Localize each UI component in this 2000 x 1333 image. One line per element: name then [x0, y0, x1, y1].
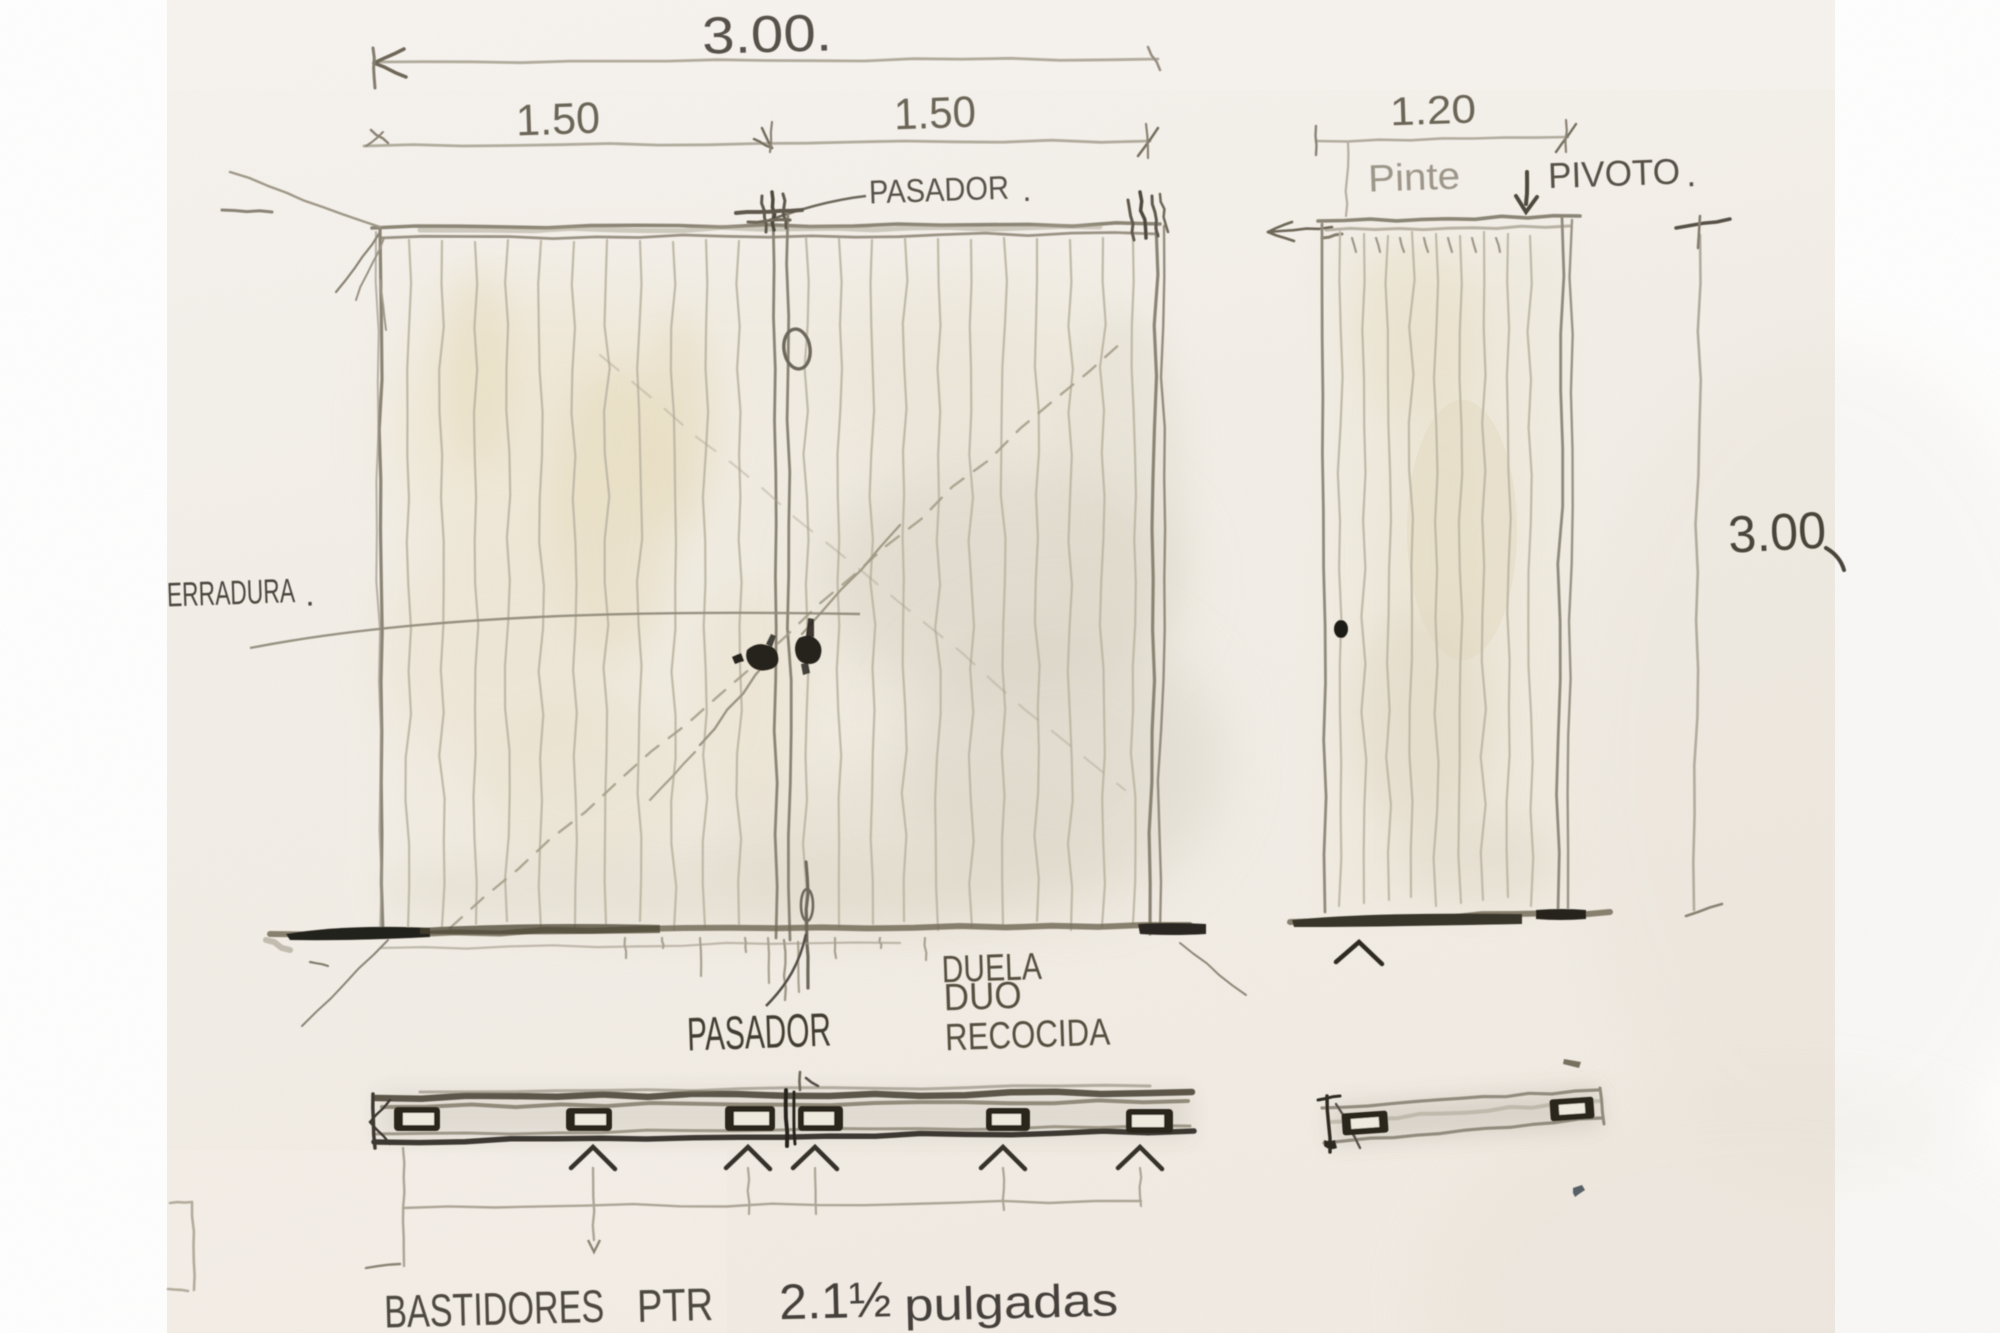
svg-text:1.50: 1.50 — [515, 94, 601, 146]
svg-text:PASADOR: PASADOR — [868, 169, 1009, 211]
svg-text:pulgadas: pulgadas — [904, 1273, 1119, 1331]
svg-text:PTR: PTR — [636, 1278, 713, 1332]
svg-text:RECOCIDA: RECOCIDA — [944, 1012, 1111, 1060]
svg-text:1.20: 1.20 — [1389, 87, 1476, 134]
svg-text:PIVOTO: PIVOTO — [1547, 151, 1680, 197]
svg-text:Pinte: Pinte — [1367, 155, 1460, 200]
svg-text:.: . — [1685, 153, 1696, 194]
svg-text:3.00: 3.00 — [1727, 502, 1828, 565]
svg-text:BASTIDORES: BASTIDORES — [383, 1280, 604, 1333]
svg-text:3.00.: 3.00. — [701, 4, 832, 65]
svg-text:.: . — [304, 575, 315, 613]
svg-text:1.50: 1.50 — [893, 88, 977, 140]
svg-text:DUO: DUO — [943, 975, 1022, 1020]
svg-text:PASADOR: PASADOR — [686, 1003, 832, 1061]
svg-text:ERRADURA: ERRADURA — [166, 572, 295, 614]
svg-text:.: . — [1021, 171, 1031, 208]
svg-text:2.1½: 2.1½ — [778, 1271, 891, 1330]
